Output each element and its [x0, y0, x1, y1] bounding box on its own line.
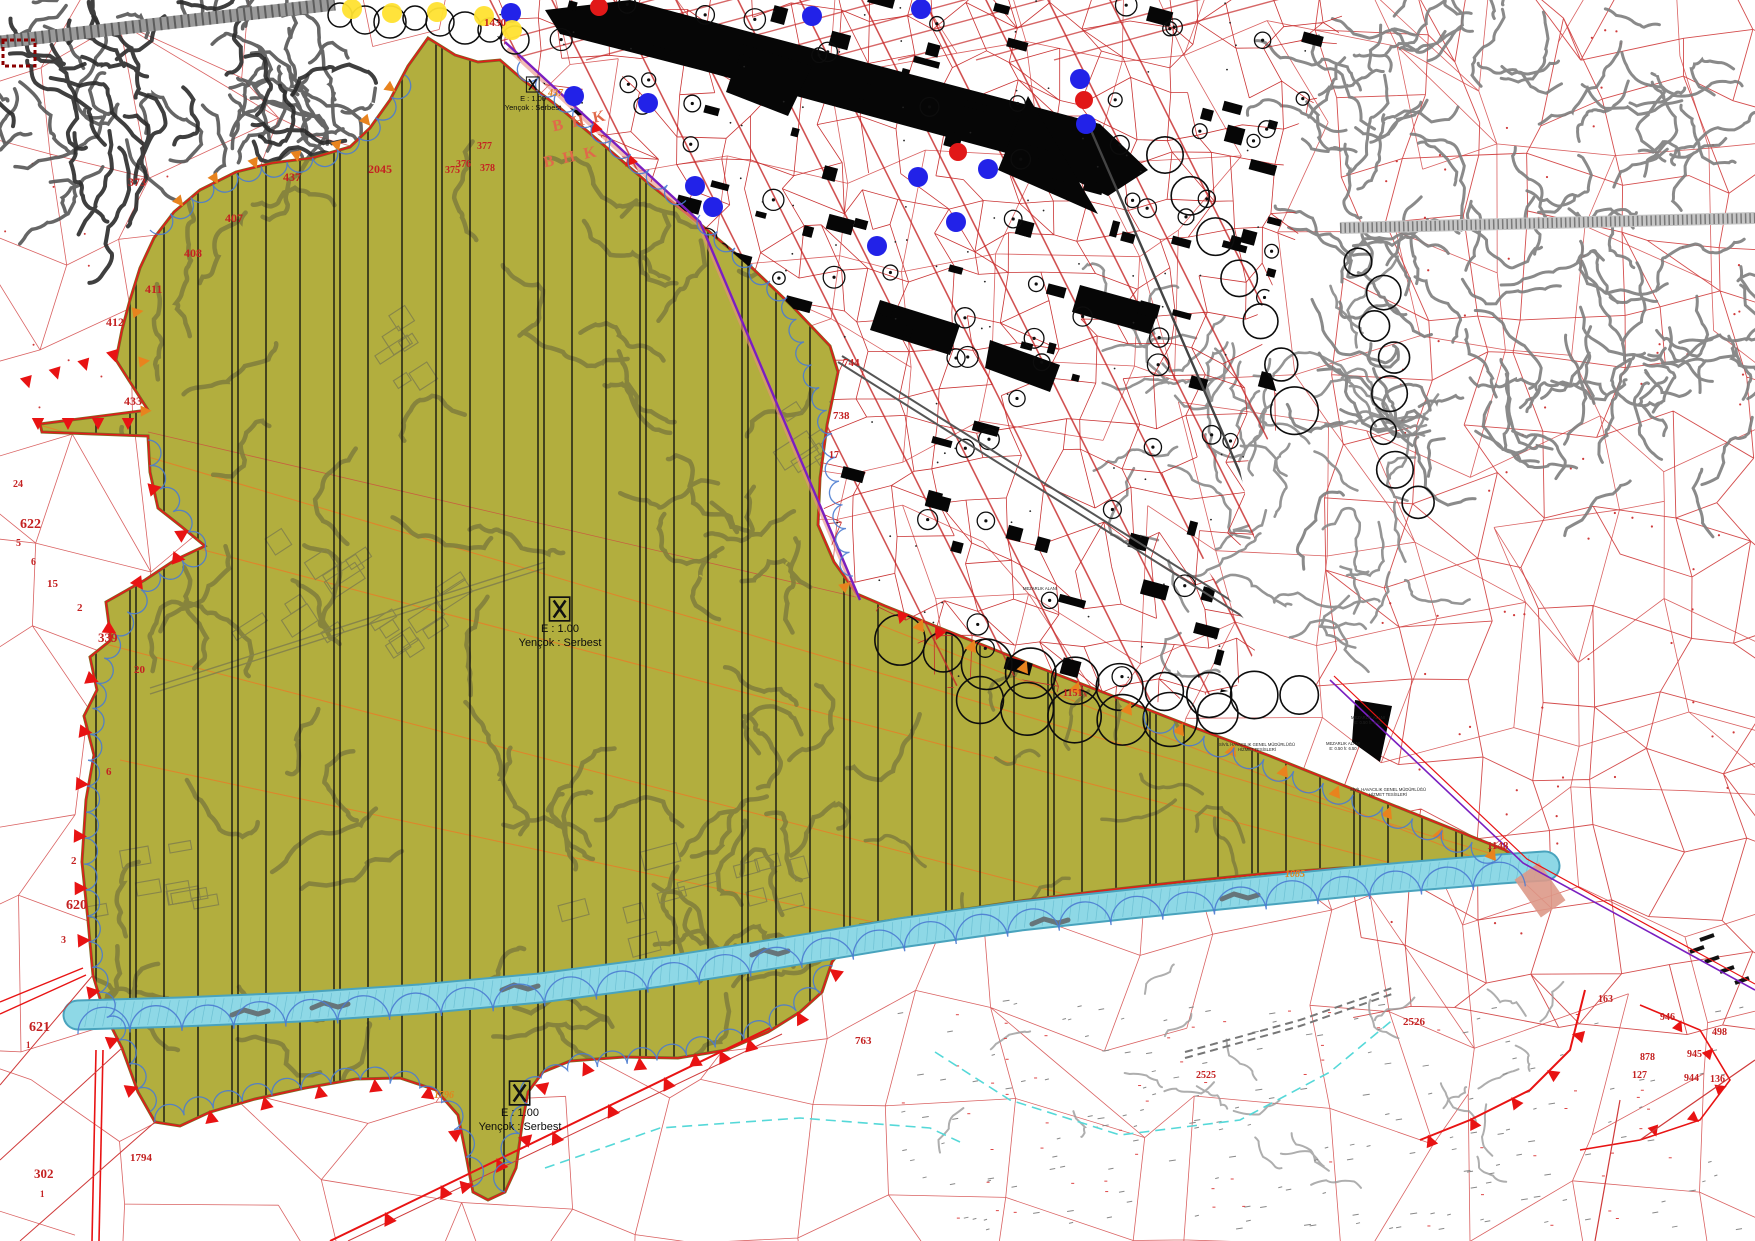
plan-canvas[interactable]: 1430373437204537737537637840740841141243… [0, 0, 1755, 1241]
parcel-number: 5 [16, 538, 21, 549]
orange-parcel-number: 1085 [1285, 869, 1305, 880]
tree-ring-icon [1221, 260, 1257, 296]
red-triangle-icon [582, 1062, 594, 1077]
yencok-value: Yençok : Serbest [479, 1121, 562, 1133]
parcel-number: 2045 [368, 162, 392, 176]
parcel-number: 127 [1632, 1070, 1647, 1081]
orange-triangle-icon [383, 81, 395, 92]
red-triangle-icon [124, 1085, 139, 1098]
red-triangle-icon [77, 358, 89, 371]
parcel-number: 378 [480, 163, 495, 174]
parcel-number: 6 [106, 766, 112, 778]
tiny-annotation: E: 0.50 h: 6.50 [1329, 746, 1357, 751]
yencok-value: Yençok : Serbest [519, 637, 602, 649]
blue-dot-icon [564, 86, 584, 106]
parcel-number: 136 [1710, 1074, 1725, 1085]
tree-ring-icon [1280, 676, 1318, 714]
blue-dot-icon [1070, 69, 1090, 89]
red-triangle-icon [384, 1212, 396, 1227]
emsal-value: E : 1.00 [541, 623, 579, 635]
blue-dot-icon [703, 197, 723, 217]
tree-ring-icon [1372, 376, 1408, 412]
tree-icon [1312, 173, 1325, 186]
parcel-number: 1151 [1063, 688, 1082, 699]
parcel-number: 1794 [130, 1152, 153, 1164]
zone-label-bottom: E : 1.00 Yençok : Serbest [479, 1080, 562, 1135]
tree-ring-icon [1171, 177, 1209, 215]
parcel-number: 621 [29, 1020, 50, 1035]
red-triangle-icon [608, 1104, 620, 1119]
red-triangle-icon [634, 1057, 648, 1071]
blue-dot-icon [911, 0, 931, 19]
blue-dot-icon [802, 6, 822, 26]
red-triangle-icon [719, 1050, 731, 1065]
blue-dot-icon [978, 159, 998, 179]
tree-icon [1238, 590, 1255, 607]
blue-dot-icon [1076, 114, 1096, 134]
parcel-number: 15 [47, 578, 59, 590]
emsal-value: E : 1.00 [520, 94, 546, 103]
parcel-number: 24 [13, 479, 23, 490]
parcel-number: 2 [77, 602, 83, 614]
red-triangle-icon [663, 1077, 675, 1092]
red-triangle-icon [105, 1037, 120, 1050]
plan-stage[interactable]: 1430373437204537737537637840740841141243… [0, 0, 1755, 1241]
blue-dot-icon [946, 212, 966, 232]
tree-icon [1115, 0, 1136, 16]
parcel-number: 20 [134, 664, 146, 676]
blue-dot-icon [867, 236, 887, 256]
blue-dot-icon [638, 93, 658, 113]
blue-dot-icon [908, 167, 928, 187]
parcel-number: 433 [124, 394, 142, 408]
yellow-tree-icon [342, 0, 362, 19]
parcel-number: 376 [456, 159, 471, 170]
parcel-number: 3 [61, 935, 66, 946]
red-triangle-icon [174, 530, 189, 543]
parcel-number: 2 [71, 855, 77, 867]
parcel-number: 738 [833, 410, 850, 422]
tiny-annotation: MEZARLIK ALANI [1023, 586, 1057, 591]
tree-ring-icon [1198, 693, 1238, 733]
tree-ring-icon [1243, 304, 1278, 339]
tree-icon [1271, 304, 1292, 325]
parcel-number: 498 [1712, 1027, 1727, 1038]
parcel-number: 1 [40, 1189, 45, 1199]
parcel-number: 2525 [1196, 1070, 1216, 1081]
red-triangle-icon [49, 366, 61, 379]
tree-ring-icon [1402, 486, 1434, 518]
parcel-number: 6 [31, 557, 36, 568]
parcel-number: 17 [829, 450, 839, 461]
parcel-number: 408 [184, 246, 202, 260]
tiny-annotation: HİZMET TESİSLERİ [1369, 792, 1407, 797]
parcel-number: 373 [128, 175, 146, 189]
yellow-tree-icon [427, 2, 447, 22]
parcel-number: 411 [145, 282, 162, 296]
red-triangle-icon [1547, 1070, 1560, 1082]
parcel-number: 1 [26, 1040, 31, 1050]
red-dot-icon [949, 143, 967, 161]
parcel-number: 412 [106, 315, 124, 329]
parcel-number: 437 [283, 170, 301, 184]
parcel-number: 620 [66, 898, 87, 913]
tiny-annotation: E: 0.50 h: 6.50 [1354, 720, 1382, 725]
red-dot-icon [1075, 91, 1093, 109]
blue-dot-icon [685, 176, 705, 196]
orange-triangle-icon [172, 195, 183, 207]
red-triangle-icon [1687, 1111, 1699, 1122]
parcel-number: 1148 [1487, 840, 1509, 852]
zone-label-top: E : 1.00 Yençok : Serbest [505, 76, 561, 113]
parcel-number: 946 [1660, 1012, 1675, 1023]
red-triangle-icon [1511, 1097, 1523, 1110]
parcel-number: 878 [1640, 1052, 1655, 1063]
parcel-number: 1430 [484, 17, 507, 29]
red-triangle-icon [20, 375, 32, 388]
tree-ring-icon [1147, 137, 1183, 173]
yencok-value: Yençok : Serbest [505, 103, 561, 112]
red-triangle-icon [797, 1012, 809, 1027]
parcel-number: 2526 [1403, 1016, 1426, 1028]
x-box-icon [509, 1080, 531, 1106]
emsal-value: E : 1.00 [501, 1107, 539, 1119]
parcel-number: 763 [855, 1035, 872, 1047]
red-triangle-icon [448, 1129, 462, 1142]
x-box-icon [549, 596, 571, 622]
parcel-number: 944 [1684, 1073, 1699, 1084]
tiny-annotation: HİZMET TESİSLERİ [1238, 747, 1276, 752]
parcel-number: 163 [1598, 994, 1613, 1005]
tree-ring-icon [1145, 672, 1183, 710]
cyan-dashed-line [545, 1118, 960, 1168]
parcel-number: 744 [843, 357, 860, 369]
parcel-number: 945 [1687, 1049, 1702, 1060]
parcel-number: 339 [98, 630, 118, 645]
red-triangle-icon [369, 1079, 383, 1093]
red-triangle-icon [829, 969, 843, 982]
x-box-icon [526, 76, 540, 93]
parcel-number: 407 [225, 211, 243, 225]
tree-icon [1281, 502, 1295, 516]
zone-label-center: E : 1.00 Yençok : Serbest [519, 596, 602, 651]
yellow-tree-icon [382, 3, 402, 23]
orange-parcel-number: 1796 [434, 1090, 454, 1101]
tree-ring-icon [1359, 311, 1389, 341]
parcel-number: 377 [477, 141, 492, 152]
parcel-number: 302 [34, 1166, 54, 1181]
red-triangle-icon [1702, 1048, 1713, 1060]
parcel-number: 622 [20, 517, 41, 532]
